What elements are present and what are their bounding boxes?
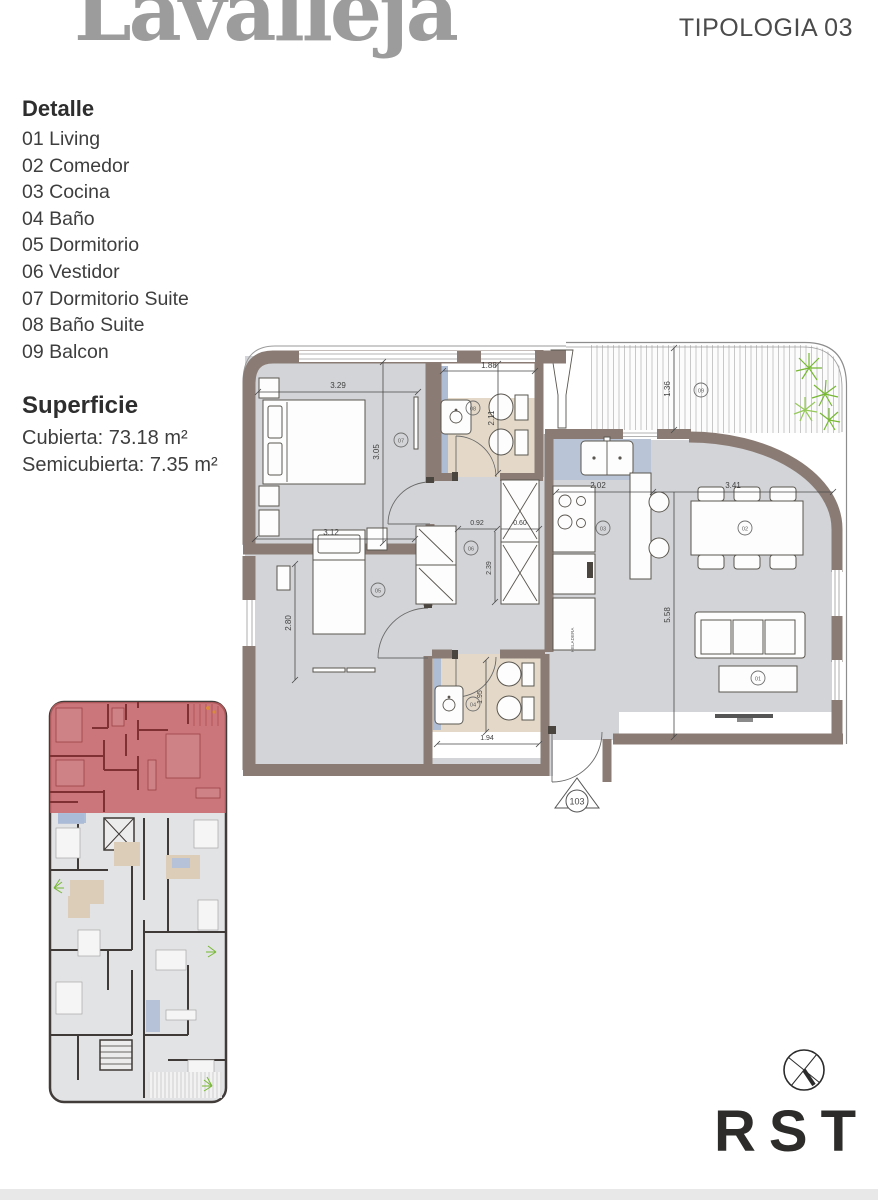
svg-text:1.94: 1.94 <box>480 735 494 742</box>
floorplan-page: Lavalleja TIPOLOGIA 03 Detalle 01 Living… <box>0 0 878 1200</box>
svg-text:2.39: 2.39 <box>486 561 493 575</box>
list-item: 06 Vestidor <box>22 259 262 286</box>
list-item: 01 Living <box>22 126 262 153</box>
svg-text:08: 08 <box>470 407 476 413</box>
svg-text:03: 03 <box>600 527 606 533</box>
svg-text:06: 06 <box>468 547 474 553</box>
list-item: 03 Cocina <box>22 179 262 206</box>
superficie-section: Superficie Cubierta: 73.18 m² Semicubier… <box>22 392 218 479</box>
detalle-list: 01 Living 02 Comedor 03 Cocina 04 Baño 0… <box>22 126 262 365</box>
superficie-semicubierta: Semicubierta: 7.35 m² <box>22 452 218 479</box>
svg-text:3.29: 3.29 <box>330 381 346 390</box>
svg-text:05: 05 <box>375 589 381 595</box>
list-item: 04 Baño <box>22 206 262 233</box>
list-item: 05 Dormitorio <box>22 232 262 259</box>
rst-logo-text: RST <box>714 1098 869 1165</box>
detalle-section: Detalle 01 Living 02 Comedor 03 Cocina 0… <box>22 96 262 365</box>
key-plan <box>48 700 228 1105</box>
brand-logo: Lavalleja <box>74 0 456 60</box>
tv <box>715 714 773 718</box>
svg-text:5.58: 5.58 <box>663 607 672 623</box>
fridge-label: HELADERA <box>570 627 575 653</box>
svg-text:09: 09 <box>698 389 704 395</box>
keyplan-balcony-blue <box>58 813 86 823</box>
svg-text:1.88: 1.88 <box>481 361 497 370</box>
superficie-cubierta: Cubierta: 73.18 m² <box>22 425 218 452</box>
svg-text:3.12: 3.12 <box>323 528 339 537</box>
svg-text:3.05: 3.05 <box>372 444 381 460</box>
balcony-deck <box>591 345 843 433</box>
list-item: 09 Balcon <box>22 339 262 366</box>
bottom-strip <box>0 1189 878 1200</box>
rst-compass-icon <box>780 1046 828 1094</box>
svg-text:2.80: 2.80 <box>284 615 293 631</box>
svg-text:07: 07 <box>398 439 404 445</box>
detalle-heading: Detalle <box>22 96 262 122</box>
svg-text:1.36: 1.36 <box>663 381 672 397</box>
list-item: 07 Dormitorio Suite <box>22 286 262 313</box>
svg-text:0.92: 0.92 <box>470 520 484 527</box>
entrance-marker: 103 <box>555 778 599 812</box>
list-item: 02 Comedor <box>22 153 262 180</box>
svg-text:01: 01 <box>755 677 761 683</box>
svg-text:04: 04 <box>470 703 476 709</box>
svg-text:2.11: 2.11 <box>487 410 496 426</box>
svg-text:0.60: 0.60 <box>513 520 527 527</box>
svg-text:02: 02 <box>742 527 748 533</box>
svg-text:103: 103 <box>569 797 584 807</box>
svg-text:2.02: 2.02 <box>590 481 606 490</box>
svg-text:3.41: 3.41 <box>725 481 741 490</box>
keyplan-stair-lower <box>100 1040 132 1070</box>
svg-text:1.95: 1.95 <box>477 690 484 704</box>
typology-label: TIPOLOGIA 03 <box>679 14 853 43</box>
main-floorplan: HELADERA <box>233 340 876 825</box>
list-item: 08 Baño Suite <box>22 312 262 339</box>
superficie-heading: Superficie <box>22 392 218 420</box>
